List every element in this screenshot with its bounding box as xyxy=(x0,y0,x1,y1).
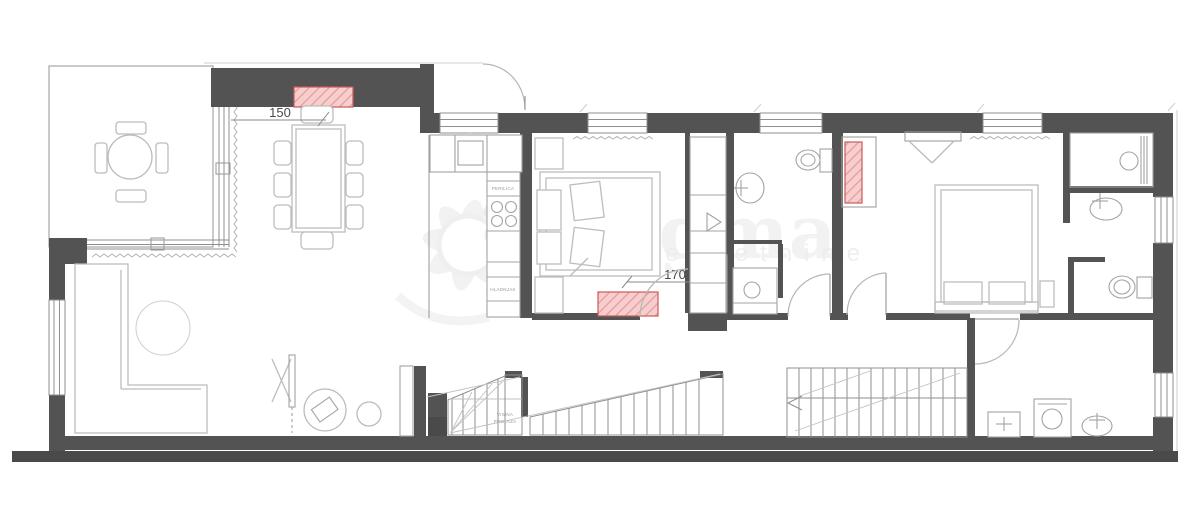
stairs-main: VISINA PROLAZA xyxy=(400,366,723,436)
corner-sofa xyxy=(75,264,207,433)
nightstand xyxy=(537,232,561,264)
wall-left-corner xyxy=(49,238,87,264)
wall-right xyxy=(1153,113,1173,197)
window xyxy=(588,113,647,133)
dining-chair xyxy=(346,205,363,229)
wall-bottom xyxy=(49,436,1168,450)
wardrobe-rail xyxy=(905,132,961,141)
window xyxy=(760,113,822,133)
terrace-chair xyxy=(95,143,107,173)
entrance-door-arc xyxy=(483,64,525,109)
appliance-label: HLADNJAK xyxy=(490,287,516,292)
window xyxy=(49,300,65,395)
washing-machine xyxy=(1034,399,1071,437)
appliance-label: PERILICA xyxy=(492,186,515,191)
terrace-chair xyxy=(116,190,146,202)
dining-chair xyxy=(274,205,291,229)
terrace-chair xyxy=(116,122,146,134)
stair-note: PROLAZA xyxy=(494,419,518,424)
ensuite-bathroom xyxy=(1070,133,1153,298)
pillow xyxy=(944,282,982,304)
wall-bathroom1-right xyxy=(832,132,843,318)
bedroom-2 xyxy=(842,132,1054,315)
dining-table xyxy=(292,125,345,232)
pillow xyxy=(570,181,604,220)
door-arc xyxy=(788,274,830,316)
footstool xyxy=(357,402,381,426)
toilet xyxy=(1109,276,1135,298)
wardrobe xyxy=(535,277,563,313)
closet xyxy=(690,137,726,313)
radiator xyxy=(598,292,658,316)
wardrobe xyxy=(535,138,563,169)
toilet xyxy=(796,150,820,170)
entrance-door xyxy=(483,64,525,110)
floor-plan-page: Dogma nekretnine xyxy=(0,0,1200,509)
insulation-zigzag xyxy=(234,92,237,252)
pillow xyxy=(570,227,604,266)
dining-chair xyxy=(274,173,291,197)
glazing xyxy=(87,92,237,257)
toilet-cistern xyxy=(820,149,832,172)
insulation-zigzag xyxy=(92,254,236,257)
stair-note: VISINA xyxy=(497,412,514,417)
door-arc xyxy=(975,320,1019,364)
stair-wall xyxy=(414,366,426,436)
terrace-chair xyxy=(156,143,168,173)
wall-entry xyxy=(420,64,434,133)
laundry-room xyxy=(975,319,1112,437)
living-room xyxy=(75,264,381,433)
window xyxy=(983,113,1042,133)
radiator xyxy=(294,87,353,107)
window xyxy=(440,113,498,133)
dining-area: 150 xyxy=(231,87,363,249)
window xyxy=(1155,373,1173,417)
nightstand xyxy=(537,190,561,230)
radiator xyxy=(845,142,862,203)
toilet-cistern xyxy=(1137,277,1152,298)
hall-closet xyxy=(690,137,726,313)
terrace-outline xyxy=(49,66,213,247)
pillow xyxy=(989,282,1025,304)
floor-plan-canvas: Dogma nekretnine xyxy=(0,0,1200,509)
terrace-round-table xyxy=(108,135,152,179)
stair-landing xyxy=(505,375,522,435)
dining-chair xyxy=(346,141,363,165)
nightstand xyxy=(1040,281,1054,307)
shower-drain xyxy=(1120,152,1138,170)
door-arc xyxy=(847,273,886,315)
armchair xyxy=(304,389,346,431)
stairs-right xyxy=(787,368,967,437)
window xyxy=(1155,197,1173,243)
rug xyxy=(136,301,190,355)
kitchen-counter-side xyxy=(487,172,520,317)
wall-bottom-outer xyxy=(12,451,1178,462)
dining-chair xyxy=(346,173,363,197)
dining-chair xyxy=(274,141,291,165)
dimension-label: 150 xyxy=(269,105,291,120)
shower xyxy=(733,268,777,314)
terrace xyxy=(49,66,213,247)
wall-laundry-left xyxy=(967,318,975,437)
dining-chair xyxy=(301,232,333,249)
